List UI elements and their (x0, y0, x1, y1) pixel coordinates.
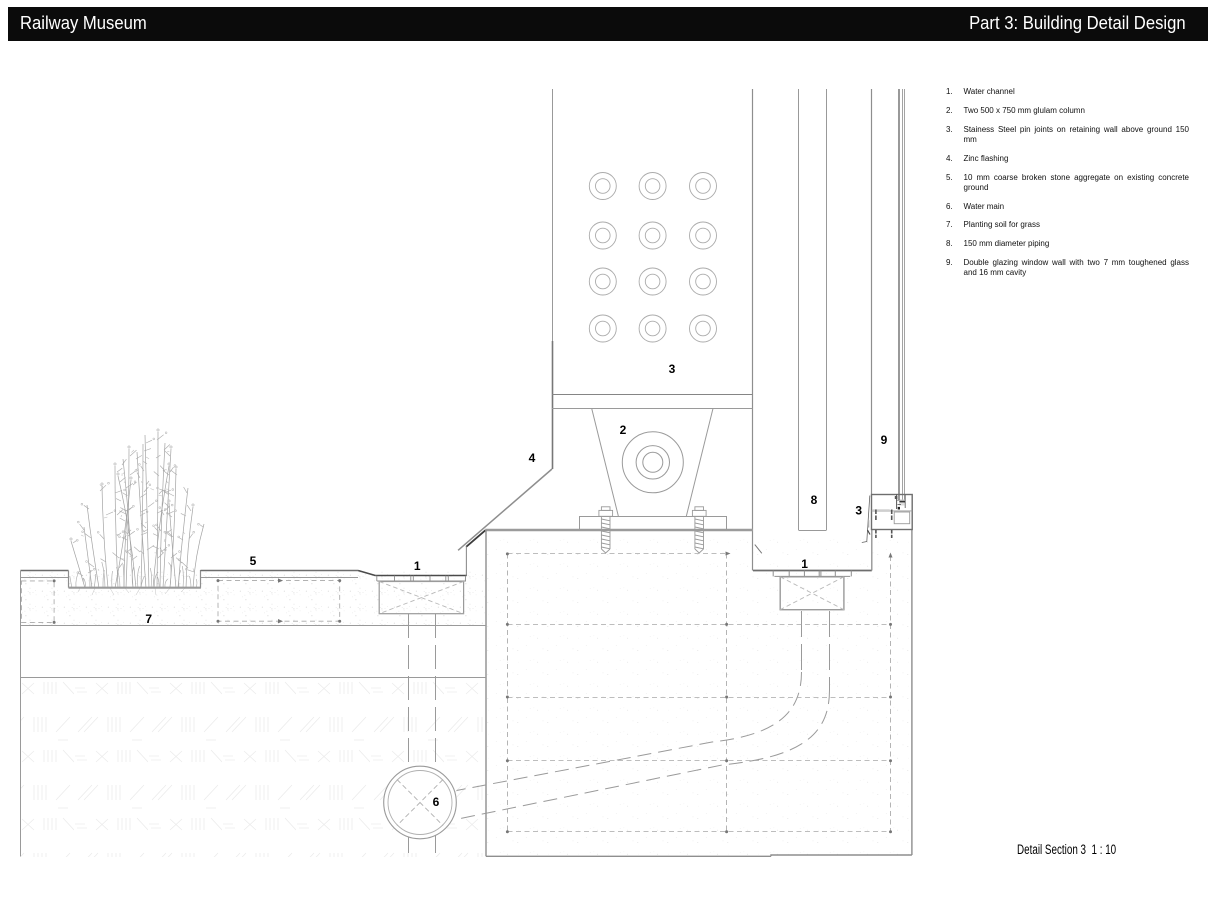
svg-text:3: 3 (855, 504, 862, 518)
svg-text:5: 5 (250, 554, 257, 568)
svg-text:6: 6 (433, 795, 440, 809)
svg-text:3: 3 (669, 362, 676, 376)
svg-text:7: 7 (145, 612, 152, 626)
svg-text:4: 4 (529, 451, 536, 465)
svg-text:1: 1 (414, 559, 421, 573)
svg-text:1: 1 (801, 557, 808, 571)
svg-text:9: 9 (881, 433, 888, 447)
svg-text:2: 2 (620, 423, 627, 437)
svg-text:8: 8 (811, 493, 818, 507)
